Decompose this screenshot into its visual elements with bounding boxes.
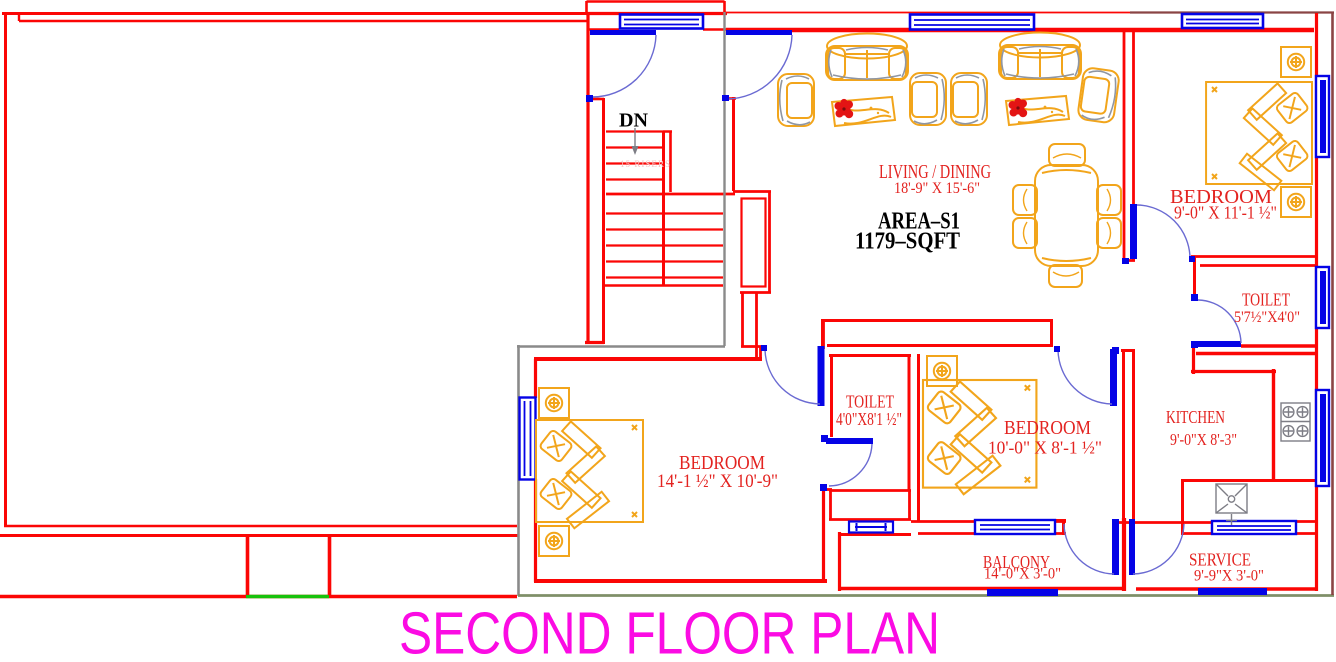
svg-text:SERVICE: SERVICE [1189, 550, 1251, 570]
svg-text:18'-9" X 15'-6": 18'-9" X 15'-6" [894, 180, 980, 197]
svg-text:10'-0" X 8'-1 ½": 10'-0" X 8'-1 ½" [988, 438, 1102, 458]
svg-text:9'-0"X 8'-3": 9'-0"X 8'-3" [1170, 430, 1237, 449]
svg-text:TOILET: TOILET [1242, 290, 1290, 310]
svg-text:9'-9"X 3'-0": 9'-9"X 3'-0" [1194, 568, 1264, 585]
svg-text:15 RISERS: 15 RISERS [620, 159, 670, 169]
svg-text:KITCHEN: KITCHEN [1166, 407, 1225, 427]
svg-text:5'7½"X4'0": 5'7½"X4'0" [1234, 309, 1300, 326]
svg-text:9'-0" X 11'-1 ½": 9'-0" X 11'-1 ½" [1174, 203, 1277, 223]
svg-text:14'-1 ½" X 10'-9": 14'-1 ½" X 10'-9" [657, 471, 778, 492]
svg-text:1179–SQFT: 1179–SQFT [855, 228, 960, 255]
svg-text:14'-0"X 3'-0": 14'-0"X 3'-0" [984, 566, 1061, 583]
svg-text:4'0"X8'1 ½": 4'0"X8'1 ½" [836, 409, 902, 429]
svg-text:SECOND FLOOR PLAN: SECOND FLOOR PLAN [399, 600, 940, 662]
svg-text:DN: DN [619, 110, 649, 132]
svg-text:BEDROOM: BEDROOM [1004, 417, 1091, 439]
